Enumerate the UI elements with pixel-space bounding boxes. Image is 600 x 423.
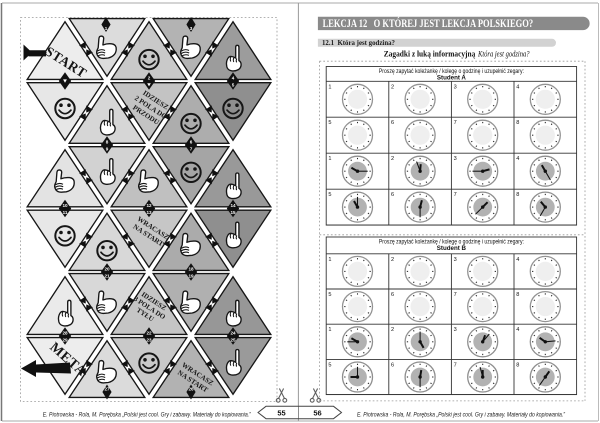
svg-text:2: 2: [391, 257, 394, 263]
svg-text:E. Piotrowska - Rola, M. Poręb: E. Piotrowska - Rola, M. Porębska „Polsk…: [357, 412, 566, 419]
svg-text:13: 13: [146, 210, 152, 215]
svg-text:27: 27: [104, 386, 110, 391]
svg-text:11: 11: [63, 210, 68, 215]
svg-text:4: 4: [232, 75, 235, 80]
svg-text:2: 2: [391, 327, 394, 333]
svg-text:E. Piotrowska - Rola, M. Poręb: E. Piotrowska - Rola, M. Porębska „Polsk…: [43, 412, 252, 419]
svg-text:7: 7: [454, 192, 457, 198]
svg-text:24: 24: [230, 330, 236, 335]
svg-text:14: 14: [230, 203, 236, 208]
svg-text:19: 19: [188, 273, 194, 278]
svg-text:3: 3: [454, 327, 457, 333]
svg-text:7: 7: [454, 362, 457, 368]
svg-text:7: 7: [190, 146, 193, 151]
svg-text:Zagadki z luką informacyjną: Zagadki z luką informacyjną: [384, 50, 476, 59]
svg-text:10: 10: [62, 203, 68, 208]
svg-text:23: 23: [146, 337, 152, 342]
svg-text:9: 9: [106, 146, 109, 151]
svg-text:1: 1: [328, 327, 331, 333]
svg-text:1: 1: [328, 156, 331, 162]
svg-text:18: 18: [188, 266, 194, 271]
svg-text:6: 6: [391, 120, 394, 126]
svg-text:21: 21: [104, 273, 110, 278]
svg-text:55: 55: [277, 409, 285, 418]
svg-text:4: 4: [516, 257, 519, 263]
svg-text:4: 4: [516, 156, 519, 162]
svg-text:3: 3: [454, 156, 457, 162]
svg-text:8: 8: [516, 120, 519, 126]
svg-text:2: 2: [148, 75, 151, 80]
svg-text:1: 1: [328, 257, 331, 263]
svg-text:8: 8: [516, 362, 519, 368]
svg-text:6: 6: [190, 139, 193, 144]
svg-text:5: 5: [328, 120, 331, 126]
svg-text:8: 8: [516, 192, 519, 198]
svg-text:3: 3: [454, 84, 457, 90]
svg-text:Student B: Student B: [437, 245, 467, 252]
svg-text:5: 5: [328, 362, 331, 368]
svg-text:15: 15: [230, 210, 236, 215]
svg-text:6: 6: [391, 292, 394, 298]
svg-text:1: 1: [328, 84, 331, 90]
svg-text:12: 12: [146, 203, 152, 208]
svg-text:3: 3: [454, 257, 457, 263]
svg-text:Student A: Student A: [437, 75, 467, 82]
svg-text:26: 26: [188, 386, 194, 391]
svg-text:5: 5: [328, 292, 331, 298]
svg-text:1: 1: [105, 26, 108, 31]
svg-text:6: 6: [391, 362, 394, 368]
svg-text:4: 4: [516, 84, 519, 90]
svg-text:2: 2: [391, 156, 394, 162]
svg-text:LEKCJA 12 O KTÓREJ JEST LEKC: LEKCJA 12 O KTÓREJ JEST LEKCJA POLSKIEGO…: [323, 16, 533, 30]
svg-text:7: 7: [454, 120, 457, 126]
svg-text:2: 2: [391, 84, 394, 90]
svg-text:8: 8: [106, 139, 109, 144]
svg-text:20: 20: [104, 266, 110, 271]
svg-text:4: 4: [516, 327, 519, 333]
svg-text:7: 7: [454, 292, 457, 298]
svg-text:Która jest godzina?: Która jest godzina?: [477, 50, 530, 59]
svg-text:12.1 Która jest godzina?: 12.1 Która jest godzina?: [322, 39, 395, 47]
svg-text:56: 56: [313, 409, 321, 418]
svg-text:6: 6: [391, 192, 394, 198]
svg-text:25: 25: [230, 337, 236, 342]
svg-text:3: 3: [190, 26, 193, 31]
svg-text:28: 28: [62, 330, 68, 335]
svg-text:29: 29: [62, 337, 68, 342]
svg-text:5: 5: [232, 82, 235, 87]
svg-text:22: 22: [146, 330, 152, 335]
svg-text:5: 5: [328, 192, 331, 198]
svg-text:8: 8: [516, 292, 519, 298]
